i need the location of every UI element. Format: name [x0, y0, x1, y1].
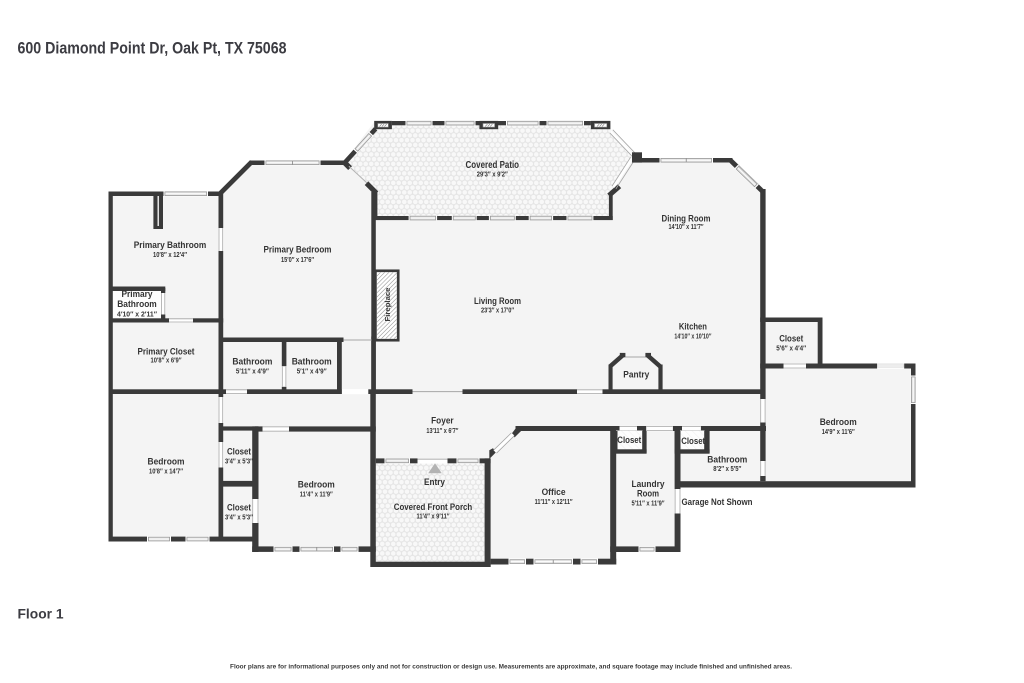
svg-text:600 Diamond Point Dr, Oak Pt,: 600 Diamond Point Dr, Oak Pt, TX 75068 [18, 40, 287, 58]
svg-text:23′3″ x 17′0″: 23′3″ x 17′0″ [481, 305, 514, 314]
svg-text:14′10″ x 10′10″: 14′10″ x 10′10″ [674, 331, 711, 340]
svg-text:Floor plans are for informatio: Floor plans are for informational purpos… [230, 664, 792, 671]
svg-text:3′4″ x 5′3″: 3′4″ x 5′3″ [225, 514, 254, 521]
svg-text:Bathroom: Bathroom [117, 299, 157, 309]
svg-text:Pantry: Pantry [623, 369, 650, 380]
svg-text:10′8″ x 12′4″: 10′8″ x 12′4″ [153, 250, 187, 259]
svg-text:Entry: Entry [424, 477, 446, 488]
svg-text:Primary: Primary [122, 289, 154, 299]
svg-text:Closet: Closet [227, 446, 251, 456]
svg-text:11′11″ x 12′11″: 11′11″ x 12′11″ [535, 497, 573, 506]
svg-text:Closet: Closet [779, 334, 803, 344]
svg-text:Floor 1: Floor 1 [18, 606, 64, 622]
svg-text:15′0″ x 17′6″: 15′0″ x 17′6″ [281, 255, 314, 264]
svg-text:Primary Bedroom: Primary Bedroom [264, 244, 332, 255]
svg-text:8′2″ x 5′5″: 8′2″ x 5′5″ [713, 464, 741, 473]
svg-text:10′8″ x 14′7″: 10′8″ x 14′7″ [149, 467, 183, 476]
svg-text:29′3″ x 9′2″: 29′3″ x 9′2″ [477, 169, 508, 178]
svg-text:3′4″ x 5′3″: 3′4″ x 5′3″ [225, 458, 254, 465]
svg-text:5′6″ x 4′4″: 5′6″ x 4′4″ [776, 346, 807, 353]
svg-text:14′9″ x 11′6″: 14′9″ x 11′6″ [822, 427, 855, 436]
svg-text:Closet: Closet [681, 436, 705, 446]
svg-text:14′10″ x 11′7″: 14′10″ x 11′7″ [669, 222, 704, 231]
svg-text:5′11″ x 4′9″: 5′11″ x 4′9″ [236, 367, 269, 376]
svg-text:11′4″ x 9′11″: 11′4″ x 9′11″ [417, 512, 450, 521]
svg-text:5′1″ x 4′9″: 5′1″ x 4′9″ [297, 367, 327, 376]
svg-text:Bedroom: Bedroom [148, 456, 185, 467]
svg-text:Foyer: Foyer [431, 416, 454, 427]
svg-text:4′10″ x 2′11″: 4′10″ x 2′11″ [117, 311, 158, 318]
svg-text:Closet: Closet [617, 435, 641, 445]
svg-text:11′4″ x 11′9″: 11′4″ x 11′9″ [300, 490, 333, 499]
svg-text:10′8″ x 6′9″: 10′8″ x 6′9″ [151, 356, 182, 365]
svg-text:Garage Not Shown: Garage Not Shown [682, 497, 753, 508]
svg-text:5′11″ x 11′9″: 5′11″ x 11′9″ [632, 498, 665, 507]
svg-text:Closet: Closet [227, 503, 251, 513]
svg-text:Fireplace: Fireplace [385, 287, 392, 321]
svg-text:13′11″ x 6′7″: 13′11″ x 6′7″ [426, 426, 458, 435]
